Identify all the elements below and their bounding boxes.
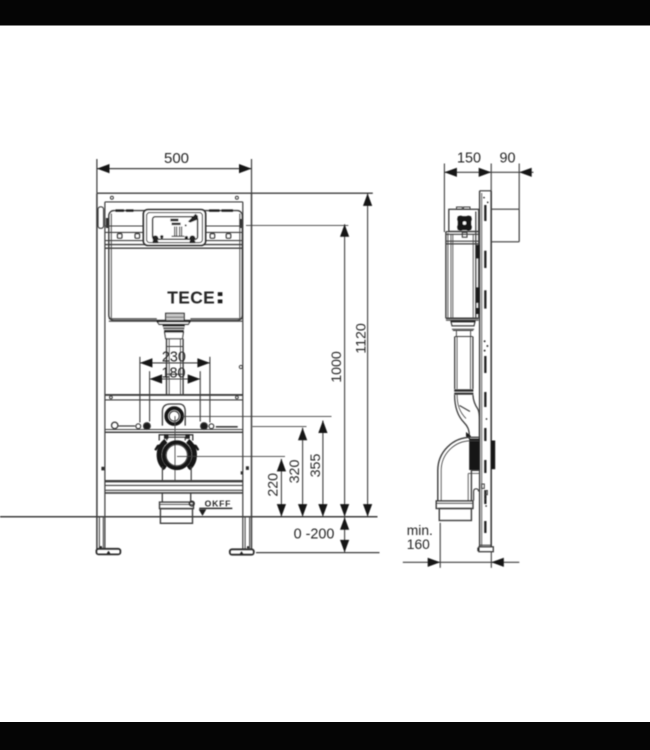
svg-text:500: 500 [164, 150, 189, 167]
svg-text:160: 160 [407, 537, 430, 552]
svg-text:180: 180 [161, 366, 185, 382]
svg-text:355: 355 [308, 454, 324, 478]
svg-text:TECE: TECE [167, 288, 215, 308]
svg-text:320: 320 [287, 460, 303, 484]
svg-text:1000: 1000 [329, 351, 345, 383]
svg-text:150: 150 [457, 150, 481, 166]
svg-text:0 -200: 0 -200 [294, 526, 335, 542]
svg-text:1120: 1120 [353, 323, 369, 354]
svg-text:90: 90 [499, 150, 515, 166]
svg-text:min.: min. [407, 523, 433, 538]
svg-text:OKFF: OKFF [205, 499, 232, 509]
svg-text:230: 230 [162, 349, 186, 365]
svg-text:220: 220 [266, 473, 282, 497]
